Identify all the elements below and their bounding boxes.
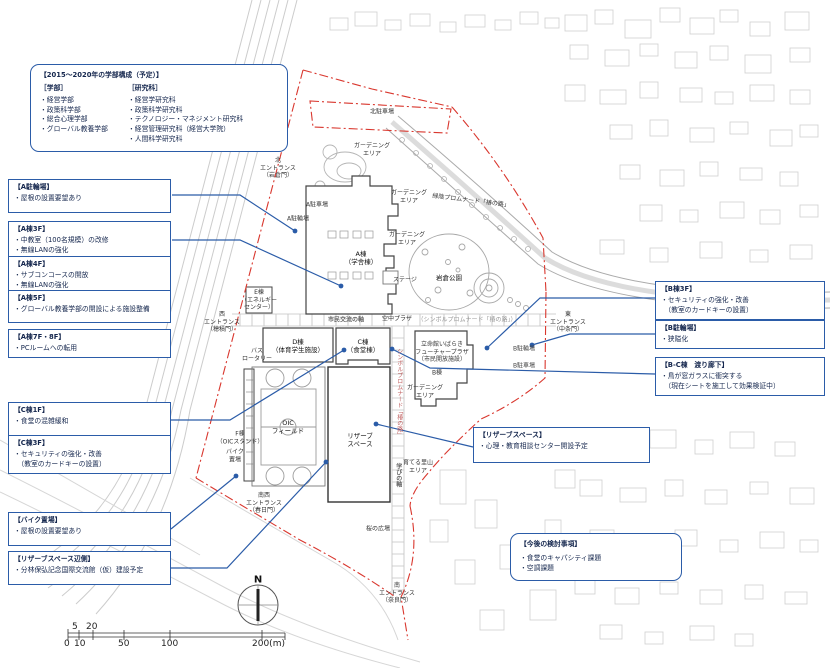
callout-line: ・無線LANの強化 (14, 246, 165, 256)
callout-c1f: 【C棟1F】 ・食堂の混雑緩和 (8, 402, 171, 436)
stage-structure (383, 271, 398, 284)
callout-line: ・心理・教育相談センター開設予定 (479, 442, 644, 452)
callout-a5f: 【A棟5F】 ・グローバル教養学部の開設による施設整備 (8, 290, 171, 323)
callout-line: ・PCルームへの転用 (14, 344, 165, 354)
callout-line: ・分林保弘記念国際交流館（仮）建設予定 (14, 566, 165, 576)
callout-b3f: 【B棟3F】 ・セキュリティの強化・改善 （教室のカードキーの設置） (655, 281, 825, 320)
graduate-item: ・経営学研究科 (128, 96, 243, 106)
callout-line: ・セキュリティの強化・改善 (661, 296, 819, 306)
scale-lower-50: 50 (118, 639, 129, 649)
reserve-space-area (328, 367, 390, 502)
callout-a3f: 【A棟3F】 ・中教室（100名規模）の改修 ・無線LANの強化 (8, 221, 171, 260)
callout-title: 【今後の検討事項】 (520, 540, 672, 550)
building-a (306, 176, 398, 314)
callout-future-topics: 【今後の検討事項】 ・食堂のキャパシティ課題 ・空調課題 (510, 533, 682, 581)
callout-line: ・中教室（100名規模）の改修 (14, 236, 165, 246)
callout-title: 【B棟3F】 (661, 285, 819, 295)
graduate-header: ［研究科］ (128, 84, 243, 94)
department-item: ・総合心理学部 (40, 115, 118, 125)
callout-line: ・鳥が窓ガラスに衝突する (661, 372, 819, 382)
callout-title: 【C棟3F】 (14, 439, 165, 449)
callout-bike: 【バイク置場】 ・屋根の設置要望あり (8, 512, 171, 546)
graduate-item: ・テクノロジー・マネジメント研究科 (128, 115, 243, 125)
callout-title: 【B駐輪場】 (661, 324, 819, 334)
callout-a-bicycle: 【A駐輪場】 ・屋根の設置要望あり (8, 179, 171, 213)
callout-line: （教室のカードキーの設置） (661, 306, 819, 316)
faculty-composition-box: 【2015〜2020年の学部構成（予定）】 ［学部］ ・経営学部 ・政策科学部 … (30, 64, 288, 152)
promenade (386, 116, 830, 308)
scale-upper-20: 20 (86, 622, 97, 632)
callout-b-bicycle: 【B駐輪場】 ・狭隘化 (655, 320, 825, 349)
north-arrow-icon (238, 585, 278, 625)
callout-line: ・食堂のキャパシティ課題 (520, 554, 672, 564)
callout-title: 【リザーブスペース】 (479, 431, 644, 441)
callout-title: 【A駐輪場】 (14, 183, 165, 193)
department-item: ・グローバル教養学部 (40, 125, 118, 135)
graduate-item: ・政策科学研究科 (128, 106, 243, 116)
callout-title: 【リザーブスペース辺側】 (14, 555, 165, 565)
callout-line: ・屋根の設置要望あり (14, 527, 165, 537)
campus-buildings (244, 176, 473, 502)
scale-lower-0: 0 (64, 639, 70, 649)
callout-line: ・狭隘化 (661, 335, 819, 345)
iwakura-park (409, 234, 529, 311)
callout-line: （教室のカードキーの設置） (14, 460, 165, 470)
callout-a4f: 【A棟4F】 ・サブコンコースの開放 ・無線LANの強化 (8, 256, 171, 295)
department-item: ・経営学部 (40, 96, 118, 106)
callout-title: 【C棟1F】 (14, 406, 165, 416)
departments-column: ［学部］ ・経営学部 ・政策科学部 ・総合心理学部 ・グローバル教養学部 (40, 84, 118, 145)
graduate-column: ［研究科］ ・経営学研究科 ・政策科学研究科 ・テクノロジー・マネジメント研究科… (128, 84, 243, 145)
callout-line: ・空調課題 (520, 564, 672, 574)
callout-c3f: 【C棟3F】 ・セキュリティの強化・改善 （教室のカードキーの設置） (8, 435, 171, 474)
callout-title: 【A棟3F】 (14, 225, 165, 235)
building-c (336, 328, 390, 364)
campus-master-plan: 北駐車場 ガーデニング エリア 北 エントランス （岩倉門） ガーデニング エリ… (0, 0, 830, 668)
scale-upper-5: 5 (72, 622, 78, 632)
building-e (246, 287, 272, 313)
callout-line: ・食堂の混雑緩和 (14, 417, 165, 427)
callout-reserve-area: 【リザーブスペース辺側】 ・分林保弘記念国際交流館（仮）建設予定 (8, 551, 171, 585)
callout-title: 【A棟7F・8F】 (14, 333, 165, 343)
callout-title: 【B-C棟 渡り廊下】 (661, 361, 819, 371)
department-item: ・政策科学部 (40, 106, 118, 116)
faculty-box-title: 【2015〜2020年の学部構成（予定）】 (40, 71, 278, 81)
callout-line: ・セキュリティの強化・改善 (14, 450, 165, 460)
graduate-item: ・人間科学研究科 (128, 135, 243, 145)
compass-north-label: N (254, 575, 262, 586)
scale-lower-200m: 200(m) (252, 639, 285, 649)
oic-field (252, 367, 325, 486)
callout-line: ・グローバル教養学部の開設による施設整備 (14, 305, 165, 315)
callout-line: （現在シートを施工して効果検証中） (661, 382, 819, 392)
callout-a7f8f: 【A棟7F・8F】 ・PCルームへの転用 (8, 329, 171, 358)
departments-header: ［学部］ (40, 84, 118, 94)
scale-lower-10: 10 (74, 639, 85, 649)
callout-reserve: 【リザーブスペース】 ・心理・教育相談センター開設予定 (473, 427, 650, 463)
graduate-item: ・経営管理研究科（経営大学院） (128, 125, 243, 135)
callout-bc-corridor: 【B-C棟 渡り廊下】 ・鳥が窓ガラスに衝突する （現在シートを施工して効果検証… (655, 357, 825, 396)
callout-title: 【A棟5F】 (14, 294, 165, 304)
callout-line: ・サブコンコースの開放 (14, 271, 165, 281)
scale-lower-100: 100 (161, 639, 178, 649)
callout-line: ・屋根の設置要望あり (14, 194, 165, 204)
callout-title: 【バイク置場】 (14, 516, 165, 526)
building-d (263, 328, 333, 362)
callout-title: 【A棟4F】 (14, 260, 165, 270)
